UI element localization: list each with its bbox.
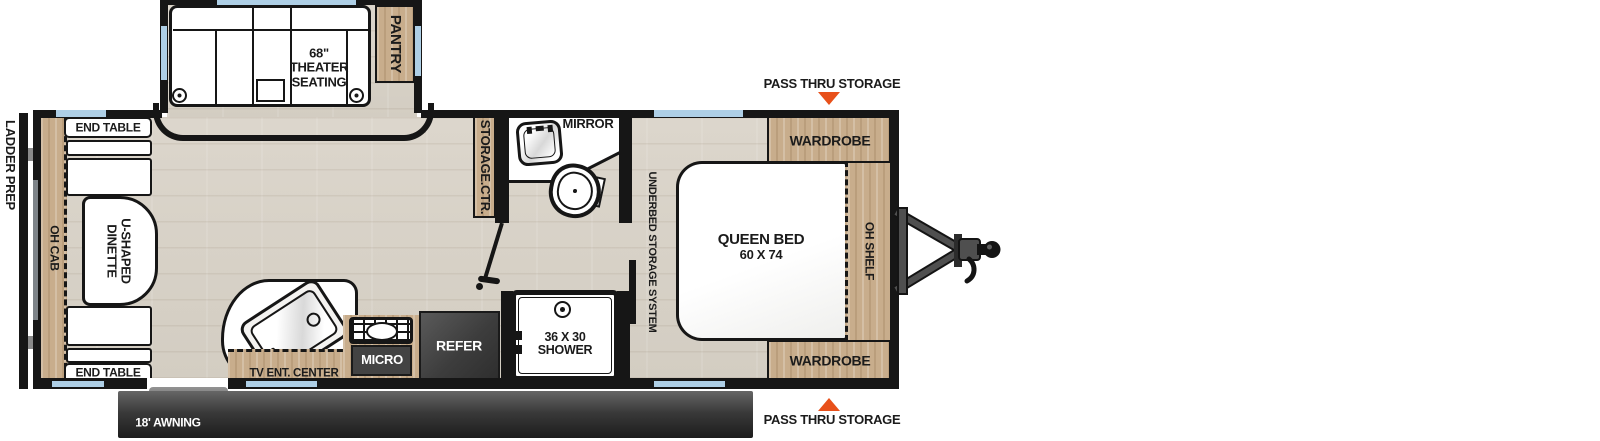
dinette-seat-top-strip <box>66 140 152 156</box>
sofa-console-left-line <box>252 7 254 105</box>
bath-wall-right-upper <box>619 115 632 223</box>
bath-door-handle-knob <box>476 283 483 290</box>
bath-faucet-mark-3 <box>547 125 553 132</box>
window-top-bedroom <box>654 110 743 117</box>
cupholder-left <box>172 88 187 103</box>
dinette-table-label: U-SHAPED DINETTE <box>105 215 132 287</box>
bath-wall-left <box>495 115 509 223</box>
window-top-left <box>56 110 106 117</box>
awning-bar <box>118 391 753 438</box>
shower-label: SHOWER <box>538 344 592 358</box>
pass-thru-bottom-label: PASS THRU STORAGE <box>764 413 901 427</box>
underbed-storage-label: UNDERBED STORAGE SYSTEM <box>645 172 657 333</box>
queen-bed-label: QUEEN BED <box>718 232 804 249</box>
pass-thru-bottom-arrow-icon <box>818 398 840 411</box>
refer-label: REFER <box>436 338 482 353</box>
slideout-window-right <box>415 26 421 76</box>
pass-thru-top-label: PASS THRU STORAGE <box>764 77 901 91</box>
slideout-window-top <box>217 0 356 5</box>
window-left-wall <box>33 180 38 320</box>
end-table-top-label: END TABLE <box>75 121 140 134</box>
cooktop-burner <box>366 322 398 341</box>
dinette-bench-bottom <box>66 306 152 346</box>
dinette-seat-bottom-strip <box>66 348 152 363</box>
shower-control-2 <box>514 345 522 354</box>
window-bottom-kitchen <box>246 381 317 387</box>
sofa-back-line <box>173 29 368 31</box>
wall-bottom-right <box>228 378 898 389</box>
bath-sink <box>515 119 564 167</box>
hitch-tongue <box>886 192 1006 308</box>
oh-shelf-label: OH SHELF <box>863 222 876 280</box>
wardrobe-top-label: WARDROBE <box>790 133 871 148</box>
slideout-valance-line <box>153 103 434 141</box>
ladder-prep-label: LADDER PREP <box>3 120 17 210</box>
shower-head <box>554 301 571 318</box>
slideout-window-left <box>161 26 167 80</box>
bedroom-stub-wall <box>629 260 636 324</box>
cooktop <box>349 317 413 344</box>
pantry-label: PANTRY <box>387 15 403 73</box>
pass-thru-top-arrow-icon <box>818 92 840 105</box>
rv-floorplan: LADDER PREP OH CAB END TABLE U-SHAPED DI… <box>0 0 1600 441</box>
micro-label: MICRO <box>361 353 403 367</box>
oh-cab-label: OH CAB <box>48 225 61 271</box>
window-bottom-left <box>52 381 104 387</box>
mirror-label: MIRROR <box>563 117 614 131</box>
bath-faucet-mark-2 <box>536 126 544 132</box>
cupholder-right <box>349 88 364 103</box>
rear-bumper-bar <box>19 113 28 389</box>
queen-bed-size: 60 X 74 <box>740 248 783 262</box>
awning-label: 18' AWNING <box>135 416 200 429</box>
theater-seating-label: 68" THEATER SEATING <box>284 47 354 90</box>
wardrobe-bottom-label: WARDROBE <box>790 353 871 368</box>
bath-faucet-mark-1 <box>527 127 533 134</box>
sofa-seam-left <box>215 29 217 105</box>
shower-control-1 <box>514 331 522 340</box>
storage-center-label: STORAGE.CTR. <box>478 120 492 214</box>
dinette-bench-top <box>66 158 152 196</box>
sofa-console-box <box>256 79 285 102</box>
window-bottom-bedroom <box>654 381 725 387</box>
